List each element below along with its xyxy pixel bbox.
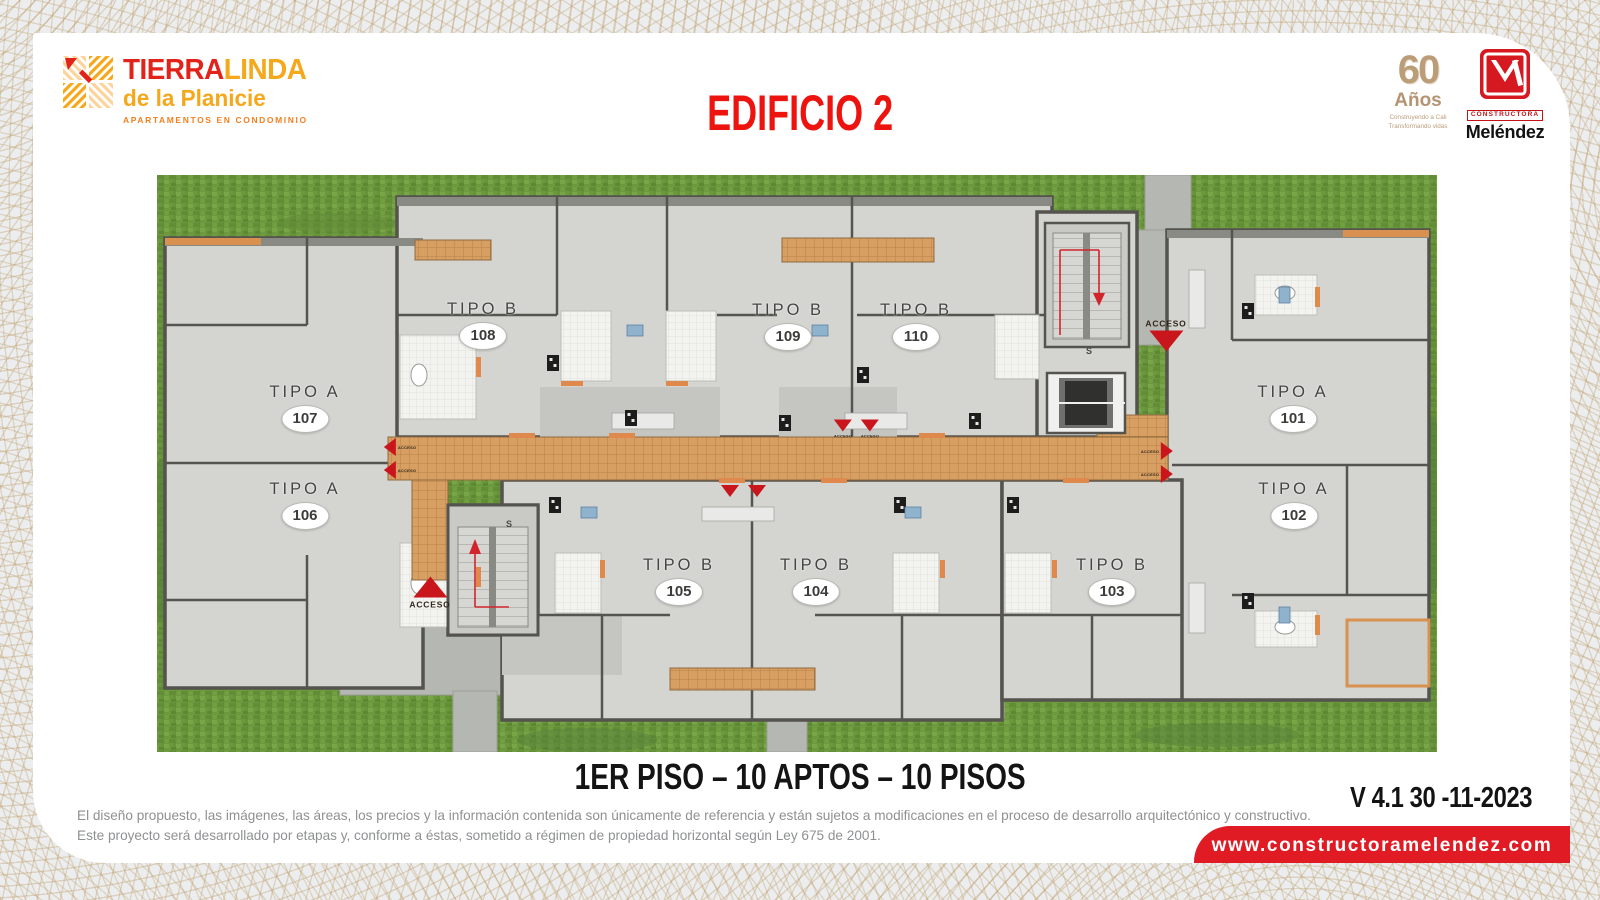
melendez-name: Meléndez <box>1460 123 1550 141</box>
acceso-marker: ACCESO <box>861 420 879 439</box>
melendez-icon <box>1479 48 1531 100</box>
unit-label-106: TIPO A106 <box>269 480 340 530</box>
plan-overlay: TIPO B108TIPO B109TIPO B110TIPO A107TIPO… <box>157 175 1437 752</box>
brand-name-secondary: LINDA <box>224 54 307 86</box>
stair-label: S <box>1086 346 1092 356</box>
unit-label-107: TIPO A107 <box>269 383 340 433</box>
unit-label-110: TIPO B110 <box>880 301 952 351</box>
unit-label-103: TIPO B103 <box>1076 556 1148 606</box>
disclaimer-line2: Este proyecto será desarrollado por etap… <box>77 826 1311 846</box>
acceso-marker: ACCESO <box>1141 442 1173 460</box>
acceso-marker: ACCESO <box>384 461 416 479</box>
version-label: V 4.1 30 -11-2023 <box>1350 782 1532 815</box>
disclaimer-line1: El diseño propuesto, las imágenes, las á… <box>77 806 1311 826</box>
acceso-marker: ACCESO <box>1145 319 1186 352</box>
unit-label-109: TIPO B109 <box>752 301 824 351</box>
flyer-page: TIERRALINDA de la Planicie APARTAMENTOS … <box>0 0 1600 900</box>
acceso-marker <box>748 485 766 497</box>
acceso-marker: ACCESO <box>834 420 852 439</box>
acceso-marker: ACCESO <box>409 577 450 610</box>
melendez-logo: CONSTRUCTORA Meléndez <box>1460 48 1550 141</box>
melendez-constructora: CONSTRUCTORA <box>1467 110 1543 121</box>
website-banner[interactable]: www.constructoramelendez.com <box>1194 826 1570 863</box>
anniversary-label: Años <box>1379 91 1457 110</box>
brand-name-primary: TIERRA <box>123 54 224 86</box>
stair-label: S <box>506 519 512 529</box>
plan-caption: 1ER PISO – 10 APTOS – 10 PISOS <box>160 756 1440 798</box>
unit-label-104: TIPO B104 <box>780 556 852 606</box>
acceso-marker: ACCESO <box>384 438 416 456</box>
acceso-marker: ACCESO <box>1141 465 1173 483</box>
unit-label-105: TIPO B105 <box>643 556 715 606</box>
anniversary-number: 60 <box>1379 50 1457 90</box>
unit-label-108: TIPO B108 <box>447 300 519 350</box>
unit-label-101: TIPO A101 <box>1257 383 1328 433</box>
page-title: EDIFICIO 2 <box>0 84 1600 142</box>
disclaimer-text: El diseño propuesto, las imágenes, las á… <box>77 806 1311 847</box>
anniversary-tagline: Construyendo a Cali Transformando vidas <box>1379 114 1457 131</box>
acceso-marker <box>721 485 739 497</box>
floor-plan: TIPO B108TIPO B109TIPO B110TIPO A107TIPO… <box>157 175 1437 752</box>
unit-label-102: TIPO A102 <box>1258 480 1329 530</box>
brand-name: TIERRALINDA <box>123 56 306 85</box>
anniversary-logo: 60 Años Construyendo a Cali Transformand… <box>1379 50 1457 131</box>
